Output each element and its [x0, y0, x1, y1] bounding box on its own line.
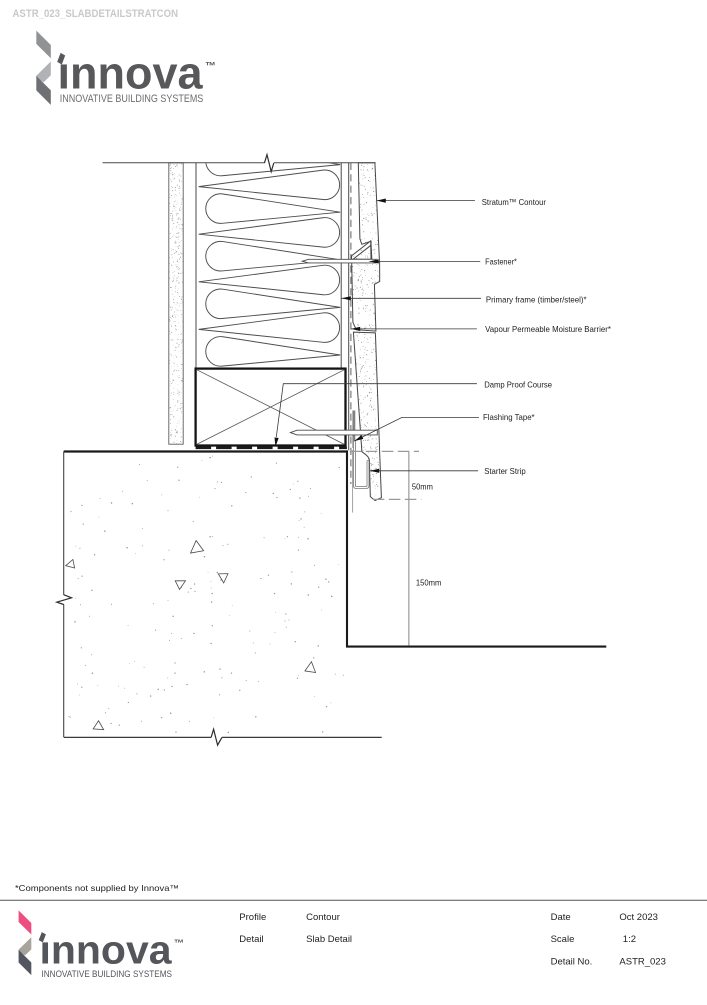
svg-text:INNOVATIVE BUILDING SYSTEMS: INNOVATIVE BUILDING SYSTEMS — [60, 93, 204, 105]
svg-text:150mm: 150mm — [416, 577, 442, 587]
svg-text:Stratum™ Contour: Stratum™ Contour — [482, 197, 546, 207]
svg-text:ınnova: ınnova — [40, 929, 173, 973]
svg-text:Primary frame (timber/steel)*: Primary frame (timber/steel)* — [486, 295, 587, 305]
svg-text:™: ™ — [174, 939, 184, 950]
svg-text:ınnova: ınnova — [58, 48, 204, 99]
svg-text:Scale: Scale — [551, 934, 575, 945]
svg-text:Oct 2023: Oct 2023 — [619, 912, 658, 923]
svg-text:*Components not supplied by In: *Components not supplied by Innova™ — [15, 883, 179, 893]
svg-text:Damp Proof Course: Damp Proof Course — [484, 380, 552, 390]
svg-text:Vapour Permeable Moisture Barr: Vapour Permeable Moisture Barrier* — [485, 324, 611, 334]
svg-text:Detail: Detail — [239, 934, 263, 945]
svg-text:ASTR_023: ASTR_023 — [619, 956, 665, 967]
svg-text:INNOVATIVE BUILDING SYSTEMS: INNOVATIVE BUILDING SYSTEMS — [42, 969, 173, 980]
svg-text:ASTR_023_SLABDETAILSTRATCON: ASTR_023_SLABDETAILSTRATCON — [13, 8, 179, 20]
svg-text:Contour: Contour — [306, 912, 340, 923]
svg-text:Profile: Profile — [239, 912, 266, 923]
svg-text:Fastener*: Fastener* — [485, 257, 517, 267]
svg-text:™: ™ — [205, 61, 216, 73]
svg-text:50mm: 50mm — [412, 482, 433, 492]
svg-text:Slab Detail: Slab Detail — [306, 934, 352, 945]
svg-text:Flashing Tape*: Flashing Tape* — [483, 412, 535, 422]
svg-text:Date: Date — [551, 912, 571, 923]
svg-text:Detail No.: Detail No. — [551, 956, 593, 967]
svg-text:Starter Strip: Starter Strip — [484, 466, 526, 476]
svg-text:1:2: 1:2 — [623, 934, 636, 945]
